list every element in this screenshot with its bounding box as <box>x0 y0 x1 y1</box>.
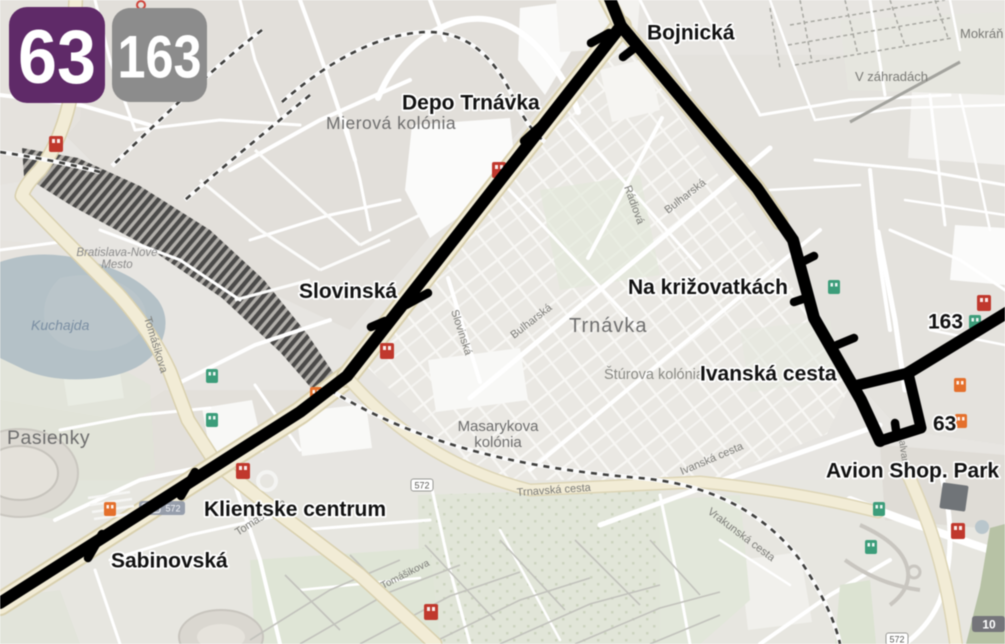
svg-text:Slovinská: Slovinská <box>299 280 397 303</box>
svg-text:Pasienky: Pasienky <box>7 427 90 449</box>
svg-text:Mierová kolónia: Mierová kolónia <box>326 113 456 133</box>
svg-text:163: 163 <box>928 311 963 334</box>
svg-text:572: 572 <box>889 635 904 644</box>
svg-text:Avion Shop. Park: Avion Shop. Park <box>826 460 999 483</box>
svg-text:63: 63 <box>18 15 96 100</box>
svg-text:Kuchajda: Kuchajda <box>31 317 90 333</box>
svg-text:V záhradách: V záhradách <box>855 69 928 84</box>
svg-text:Ivanská cesta: Ivanská cesta <box>700 363 837 386</box>
svg-text:Mokráň: Mokráň <box>960 26 1003 41</box>
svg-text:kolónia: kolónia <box>474 434 522 451</box>
svg-text:Štúrova kolónia: Štúrova kolónia <box>604 366 705 383</box>
svg-text:572: 572 <box>165 504 180 514</box>
svg-text:Sabinovská: Sabinovská <box>111 550 228 573</box>
svg-text:10: 10 <box>982 618 996 632</box>
svg-text:Depo Trnávka: Depo Trnávka <box>402 92 540 115</box>
svg-text:Klientske centrum: Klientske centrum <box>204 498 386 521</box>
svg-text:63: 63 <box>933 413 956 436</box>
svg-text:163: 163 <box>118 24 202 91</box>
svg-text:Bojnická: Bojnická <box>647 22 735 45</box>
svg-text:Mesto: Mesto <box>101 259 133 271</box>
svg-text:Trnávka: Trnávka <box>569 315 648 337</box>
svg-text:Bratislava-Nové: Bratislava-Nové <box>76 247 157 259</box>
svg-text:Na križovatkách: Na križovatkách <box>628 276 788 299</box>
svg-text:572: 572 <box>414 481 429 491</box>
svg-text:Masarykova: Masarykova <box>458 418 540 435</box>
